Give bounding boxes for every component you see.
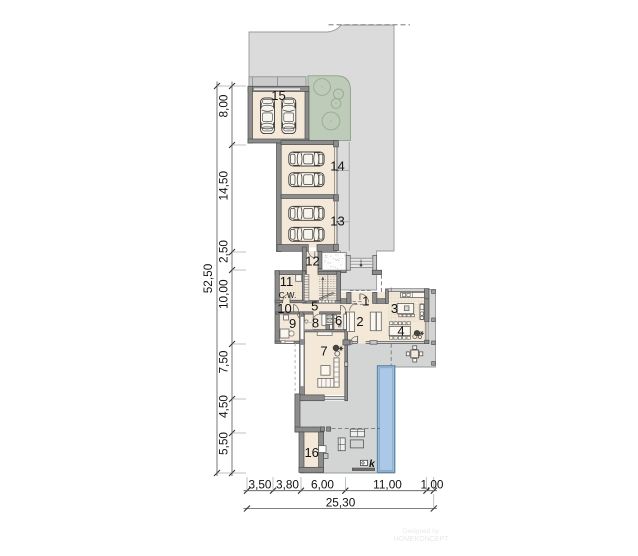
- svg-text:6: 6: [335, 313, 342, 328]
- svg-text:7,50: 7,50: [217, 350, 231, 373]
- svg-text:5: 5: [311, 299, 318, 314]
- svg-text:14,50: 14,50: [217, 171, 231, 201]
- svg-text:3,80: 3,80: [276, 477, 299, 491]
- svg-text:10,00: 10,00: [217, 279, 231, 309]
- svg-text:1,00: 1,00: [421, 477, 444, 491]
- svg-text:6,00: 6,00: [311, 477, 334, 491]
- svg-text:2,50: 2,50: [217, 240, 231, 263]
- svg-text:3,50: 3,50: [249, 477, 272, 491]
- svg-text:3: 3: [391, 301, 398, 316]
- svg-text:25,30: 25,30: [326, 495, 356, 509]
- svg-text:8,00: 8,00: [217, 94, 231, 117]
- svg-text:14: 14: [330, 159, 344, 174]
- svg-text:11: 11: [280, 274, 294, 289]
- svg-text:52,50: 52,50: [201, 263, 215, 293]
- svg-text:7: 7: [320, 344, 327, 359]
- svg-text:16: 16: [304, 445, 318, 460]
- svg-text:4,50: 4,50: [217, 395, 231, 418]
- svg-text:1: 1: [362, 294, 369, 309]
- svg-text:C.W.: C.W.: [279, 291, 296, 300]
- svg-text:15: 15: [271, 88, 285, 103]
- svg-text:13: 13: [330, 214, 344, 229]
- svg-text:4: 4: [397, 324, 404, 339]
- svg-text:8: 8: [312, 316, 319, 331]
- svg-text:9: 9: [289, 316, 296, 331]
- svg-text:10: 10: [277, 301, 291, 316]
- svg-text:Designed by: Designed by: [403, 528, 440, 535]
- svg-text:5,50: 5,50: [217, 432, 231, 455]
- svg-text:HOMEKONCEPT: HOMEKONCEPT: [394, 536, 450, 543]
- svg-text:2: 2: [356, 314, 363, 329]
- svg-text:12: 12: [305, 254, 319, 269]
- svg-text:11,00: 11,00: [373, 477, 402, 491]
